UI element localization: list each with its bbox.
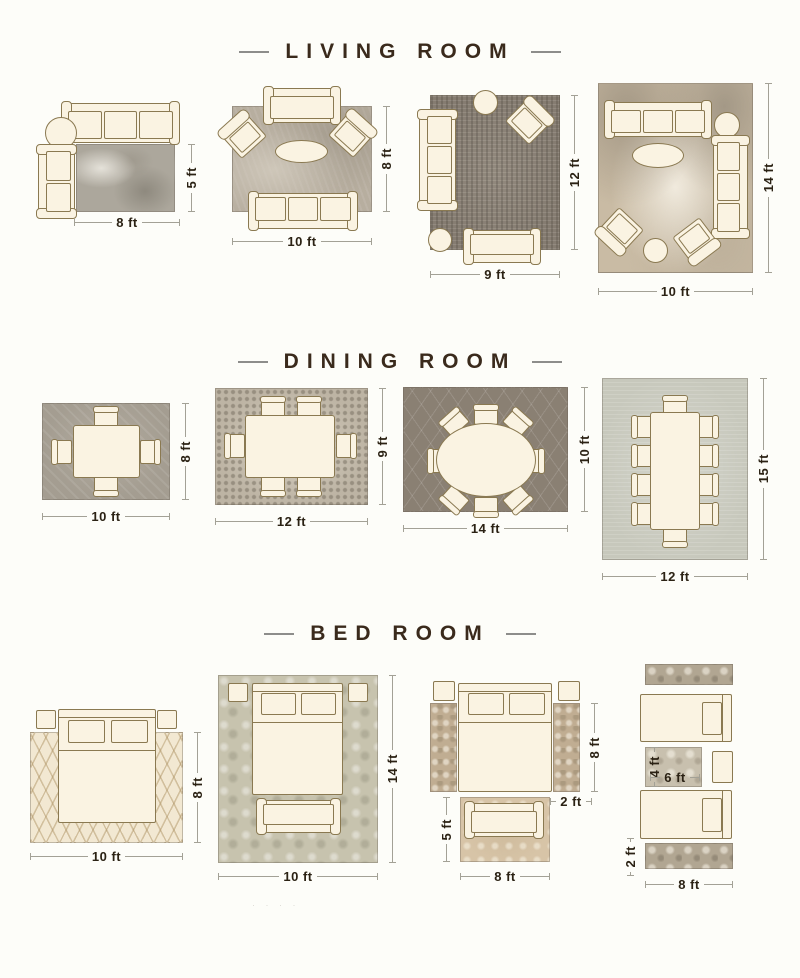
oval-coffee-table: [275, 140, 328, 163]
dining-chair: [698, 416, 716, 438]
pillow: [702, 702, 722, 735]
blanket-fold: [59, 750, 155, 751]
sofa-cushions: [255, 197, 351, 221]
dining-chair: [698, 503, 716, 525]
runner-width-dimension: 2 ft: [622, 838, 638, 876]
round-side-table: [473, 90, 498, 115]
title-dash-left: [239, 51, 269, 53]
nightstand: [36, 710, 56, 729]
blanket-fold: [253, 722, 342, 723]
dining-chair: [297, 476, 321, 494]
twin-bed: [640, 790, 732, 839]
dining-chair: [336, 434, 354, 458]
twin-bed: [640, 694, 732, 742]
pillow: [68, 720, 105, 743]
pillow: [261, 693, 296, 715]
dining-chair: [94, 476, 118, 494]
rug-height-dimension: 5 ft: [183, 144, 199, 212]
rug-width-dimension: 12 ft: [215, 513, 368, 529]
center-rug-width-dimension: 6 ft: [650, 769, 700, 785]
nightstand: [228, 683, 248, 702]
side-runner-rug: [430, 703, 457, 792]
headboard: [459, 684, 551, 692]
three-seat-sofa: [607, 102, 709, 137]
title-dash-right: [506, 633, 536, 635]
runner-length-dimension: 8 ft: [586, 703, 602, 792]
three-seat-sofa: [419, 112, 456, 208]
runner-length-dimension: 8 ft: [645, 876, 733, 892]
rug-width-dimension: 14 ft: [403, 520, 568, 536]
rug-width-dimension: 10 ft: [598, 283, 753, 299]
section-title-text: LIVING ROOM: [285, 40, 514, 64]
headboard: [253, 684, 342, 692]
section-title-bed-room: BED ROOM: [0, 622, 800, 646]
nightstand: [712, 751, 733, 783]
loveseat: [466, 230, 538, 263]
rug-size-guide-infographic: LIVING ROOM 8 ft 5 ft 10 ft 8 ft: [0, 0, 800, 978]
title-dash-left: [238, 361, 268, 363]
runner-width-dimension: 2 ft: [550, 793, 592, 809]
round-ottoman: [428, 228, 452, 252]
oval-coffee-table: [632, 143, 684, 168]
rug-height-dimension: 14 ft: [760, 83, 776, 273]
oval-dining-table: [436, 423, 536, 497]
section-title-living-room: LIVING ROOM: [0, 40, 800, 64]
bench-cushion: [263, 804, 334, 825]
sofa: [266, 88, 338, 123]
rug-height-dimension: 12 ft: [566, 95, 582, 250]
nightstand: [558, 681, 580, 701]
foot-rug-width-dimension: 8 ft: [460, 868, 550, 884]
rug-height-dimension: 15 ft: [755, 378, 771, 560]
pillow: [468, 693, 504, 715]
title-dash-right: [531, 51, 561, 53]
rug-width-dimension: 10 ft: [232, 233, 372, 249]
dining-chair: [227, 434, 245, 458]
sofa: [64, 103, 177, 143]
blanket-fold: [459, 722, 551, 723]
nightstand: [348, 683, 368, 702]
rug-width-dimension: 10 ft: [218, 868, 378, 884]
section-title-dining-room: DINING ROOM: [0, 350, 800, 374]
queen-bed: [458, 683, 552, 792]
rug-height-dimension: 14 ft: [384, 675, 400, 863]
sofa-cushions: [68, 111, 173, 139]
rug-height-dimension: 9 ft: [374, 388, 390, 505]
rug-height-dimension: 8 ft: [378, 106, 394, 212]
section-title-text: BED ROOM: [310, 622, 490, 646]
section-title-text: DINING ROOM: [284, 350, 517, 374]
dining-table: [650, 412, 700, 530]
pillow: [301, 693, 336, 715]
pillow: [111, 720, 148, 743]
runner-rug: [645, 664, 733, 685]
rug-width-dimension: 12 ft: [602, 568, 748, 584]
sofa-cushions: [427, 116, 452, 204]
sofa: [251, 193, 355, 229]
headboard: [722, 695, 731, 741]
rug-height-dimension: 10 ft: [576, 387, 592, 512]
nightstand: [433, 681, 455, 701]
dining-chair: [54, 440, 72, 464]
pillow: [509, 693, 545, 715]
dining-chair: [474, 497, 498, 515]
rug-width-dimension: 10 ft: [30, 848, 183, 864]
bench: [259, 800, 338, 833]
dining-chair: [261, 476, 285, 494]
runner-rug: [645, 843, 733, 869]
rug-8x5: [76, 144, 175, 212]
sofa-cushions: [470, 234, 534, 255]
rug-width-dimension: 10 ft: [42, 508, 170, 524]
nightstand: [157, 710, 177, 729]
foot-rug-height-dimension: 5 ft: [438, 797, 454, 862]
queen-bed: [252, 683, 343, 795]
title-dash-left: [264, 633, 294, 635]
bench: [467, 803, 541, 837]
headboard: [722, 791, 731, 838]
queen-bed: [58, 709, 156, 823]
rug-width-dimension: 8 ft: [74, 214, 180, 230]
dining-chair: [698, 474, 716, 496]
title-dash-right: [532, 361, 562, 363]
dining-chair: [140, 440, 158, 464]
headboard: [59, 710, 155, 718]
dining-table: [245, 415, 335, 478]
side-runner-rug: [553, 703, 580, 792]
pillow: [702, 798, 722, 832]
dining-table: [73, 425, 140, 478]
sofa-cushions: [611, 110, 705, 133]
round-side-table: [643, 238, 668, 263]
sofa-cushions: [717, 142, 740, 232]
sofa-cushions: [270, 96, 334, 119]
bench-cushion: [471, 811, 537, 833]
rug-height-dimension: 8 ft: [177, 403, 193, 500]
dining-chair: [698, 445, 716, 467]
loveseat: [38, 147, 75, 216]
sofa-cushions: [46, 151, 71, 212]
rug-width-dimension: 9 ft: [430, 266, 560, 282]
watermark-dots: · · · ·: [252, 900, 300, 910]
rug-height-dimension: 8 ft: [189, 732, 205, 843]
three-seat-sofa: [713, 138, 748, 236]
